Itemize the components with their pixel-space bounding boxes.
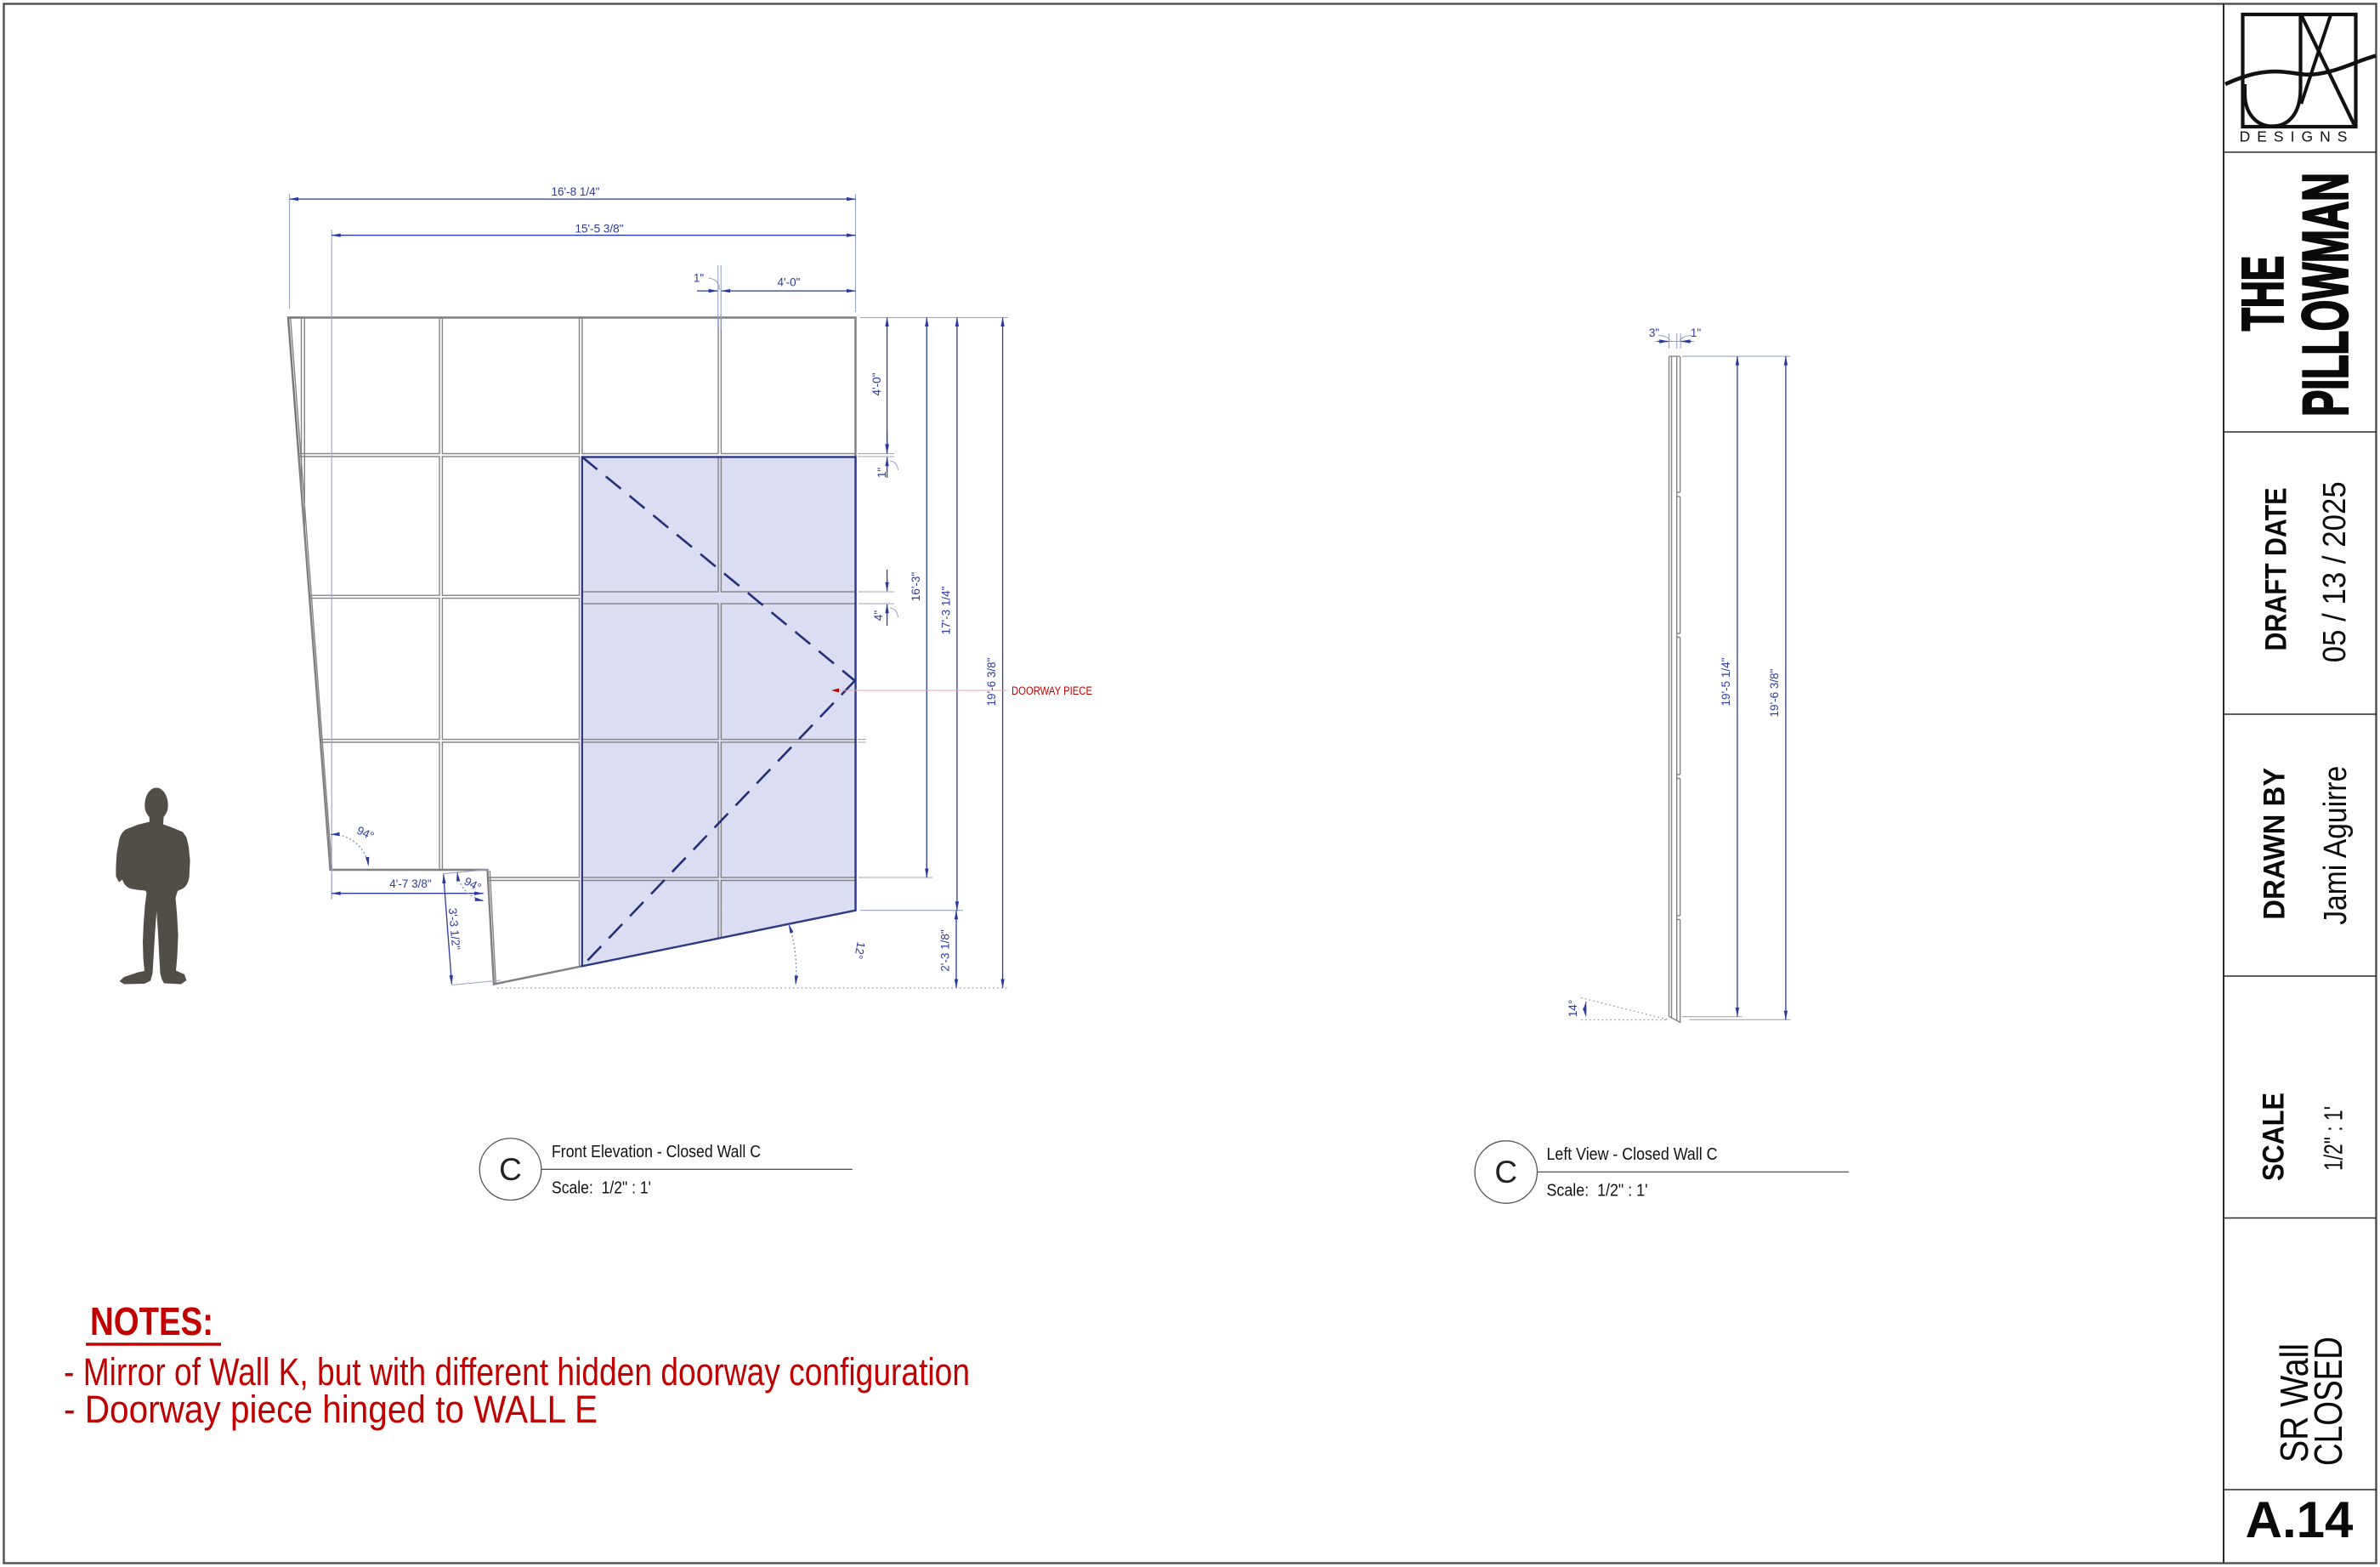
svg-text:16'-3": 16'-3" bbox=[909, 572, 922, 602]
svg-text:- Doorway piece hinged to WALL: - Doorway piece hinged to WALL E bbox=[64, 1388, 598, 1431]
svg-text:1": 1" bbox=[875, 468, 888, 479]
svg-text:19'-5 1/4": 19'-5 1/4" bbox=[1720, 657, 1732, 706]
svg-text:DRAFT DATE: DRAFT DATE bbox=[2260, 488, 2293, 651]
svg-text:PILLOWMAN: PILLOWMAN bbox=[2292, 173, 2362, 417]
svg-text:4'-0": 4'-0" bbox=[778, 276, 801, 289]
svg-text:19'-6 3/8": 19'-6 3/8" bbox=[985, 657, 998, 706]
svg-text:Jami Aguirre: Jami Aguirre bbox=[2318, 766, 2354, 925]
svg-text:4": 4" bbox=[872, 610, 885, 622]
svg-text:NOTES:: NOTES: bbox=[90, 1299, 213, 1343]
svg-text:A.14: A.14 bbox=[2246, 1491, 2354, 1548]
svg-text:14°: 14° bbox=[1567, 1000, 1579, 1017]
svg-text:C: C bbox=[499, 1152, 522, 1187]
svg-text:2'-3 1/8": 2'-3 1/8" bbox=[939, 929, 952, 972]
svg-text:Left View - Closed Wall C: Left View - Closed Wall C bbox=[1547, 1144, 1718, 1164]
svg-text:Scale: 1/2" : 1': Scale: 1/2" : 1' bbox=[1547, 1181, 1648, 1201]
svg-text:1/2" : 1': 1/2" : 1' bbox=[2319, 1106, 2349, 1171]
svg-text:05 / 13 / 2025: 05 / 13 / 2025 bbox=[2317, 481, 2353, 662]
svg-text:15'-5 3/8": 15'-5 3/8" bbox=[575, 223, 624, 236]
svg-text:1": 1" bbox=[694, 272, 705, 285]
svg-text:SCALE: SCALE bbox=[2258, 1093, 2291, 1181]
svg-text:DESIGNS: DESIGNS bbox=[2240, 128, 2354, 145]
svg-text:4'-0": 4'-0" bbox=[870, 372, 883, 395]
svg-text:DRAWN BY: DRAWN BY bbox=[2258, 768, 2292, 920]
svg-text:Scale: 1/2" : 1': Scale: 1/2" : 1' bbox=[552, 1178, 651, 1198]
svg-text:C: C bbox=[1494, 1155, 1517, 1189]
svg-text:DOORWAY PIECE: DOORWAY PIECE bbox=[1011, 684, 1092, 697]
svg-text:16'-8 1/4": 16'-8 1/4" bbox=[552, 185, 600, 198]
svg-text:CLOSED: CLOSED bbox=[2306, 1337, 2350, 1466]
svg-text:17'-3 1/4": 17'-3 1/4" bbox=[940, 586, 953, 634]
svg-text:THE: THE bbox=[2231, 256, 2296, 331]
svg-text:Front Elevation - Closed Wall: Front Elevation - Closed Wall C bbox=[552, 1142, 761, 1161]
svg-text:1": 1" bbox=[1691, 326, 1702, 339]
svg-text:3": 3" bbox=[1649, 326, 1660, 339]
svg-text:19'-6 3/8": 19'-6 3/8" bbox=[1768, 668, 1781, 717]
svg-text:4'-7 3/8": 4'-7 3/8" bbox=[389, 877, 432, 890]
